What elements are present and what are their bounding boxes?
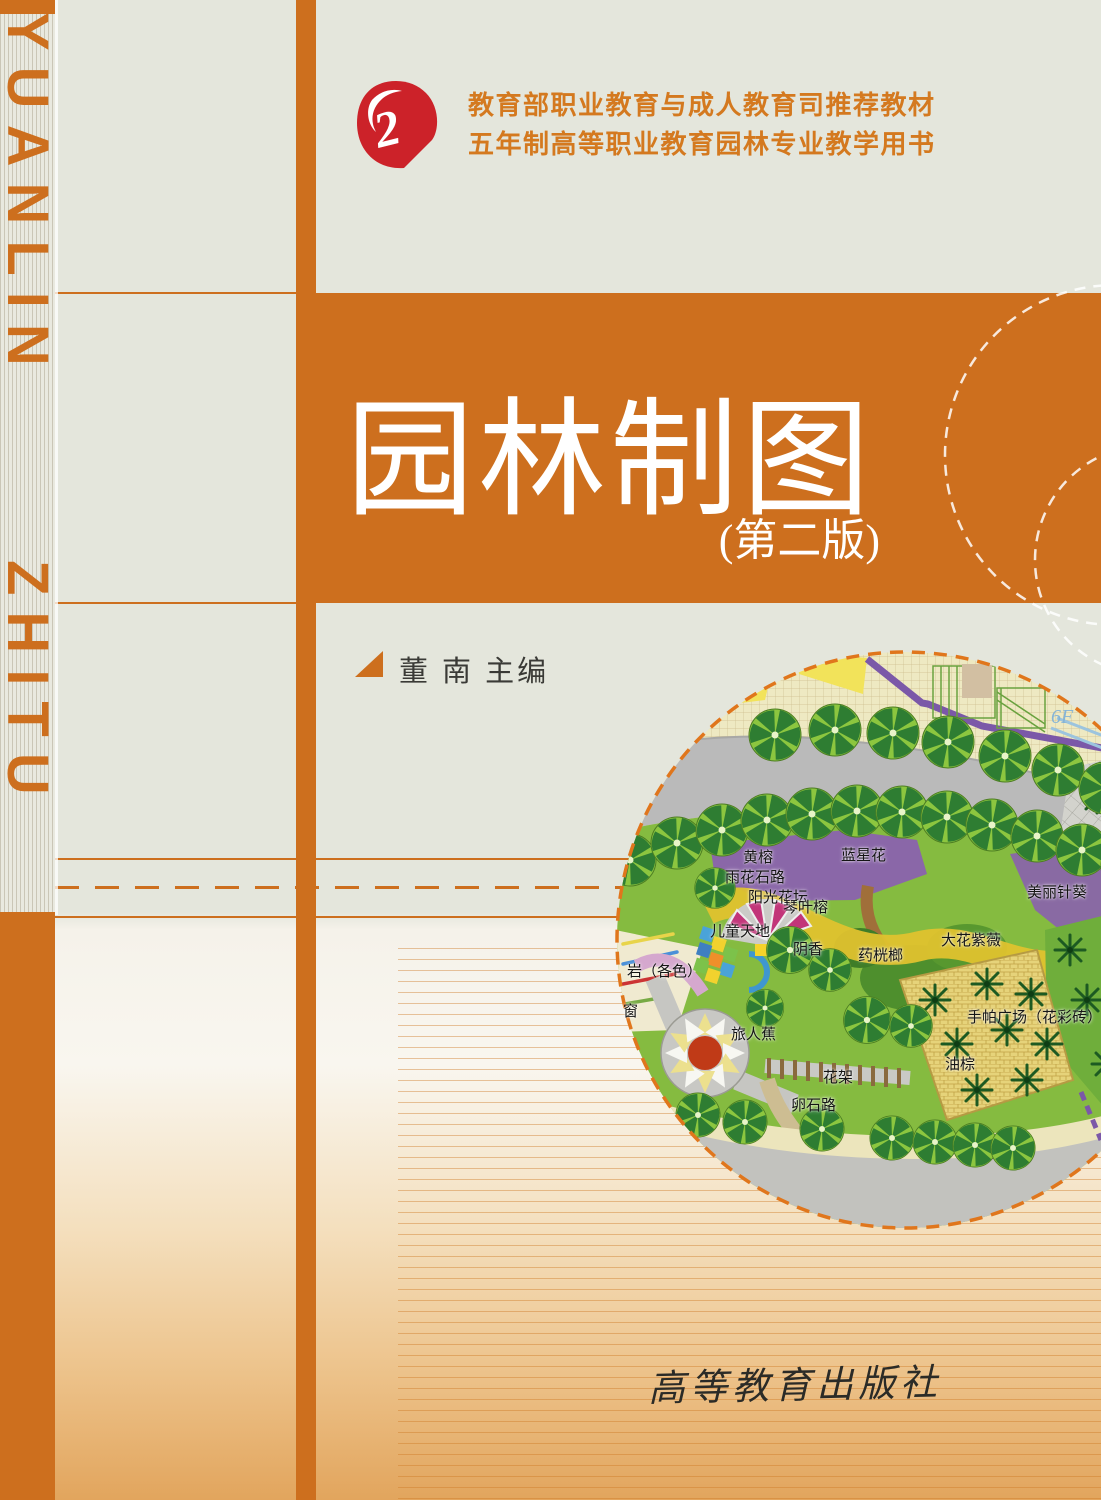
- garden-plan: 6F黄榕雨花石路阳光花坛蓝星花琴叶榕美丽针葵儿童天地阴香药桄榔大花紫薇岩（各色）…: [615, 648, 1101, 1232]
- plan-label: 药桄榔: [858, 944, 903, 965]
- series-line-2: 五年制高等职业教育园林专业教学用书: [468, 125, 936, 164]
- publisher-logo: 2: [352, 78, 440, 172]
- spine-bottom-block: [0, 912, 55, 1500]
- author-line: 董 南 主编: [399, 648, 549, 690]
- vertical-rule: [296, 0, 316, 1500]
- plan-label: 儿童天地: [710, 920, 770, 941]
- book-cover: YUANLIN ZHITU 园林制图 (第二版) 2 教育部职业教育与成人教育司…: [0, 0, 1101, 1500]
- plan-label: 油棕: [945, 1053, 975, 1074]
- plan-label: 蓝星花: [841, 844, 886, 865]
- horizontal-rule-top: [55, 292, 296, 294]
- plan-label: 阴香: [793, 938, 823, 959]
- plan-label: 旅人蕉: [731, 1023, 776, 1044]
- plan-label: 黄榕: [743, 846, 773, 867]
- garden-plan-illustration: [615, 648, 1101, 1232]
- author-triangle-icon: [355, 651, 383, 677]
- spine-strip: YUANLIN ZHITU: [0, 0, 55, 915]
- horizontal-rule-mid: [55, 602, 296, 604]
- plan-label: 琴叶榕: [783, 896, 828, 917]
- edition-label: (第二版): [346, 504, 880, 568]
- spine-text-zhitu: ZHITU: [0, 560, 55, 811]
- plan-label: 窗: [623, 1000, 638, 1021]
- plan-label: 美丽针葵: [1027, 881, 1087, 902]
- publisher-name: 高等教育出版社: [647, 1352, 942, 1412]
- plan-label: 雨花石路: [725, 866, 785, 887]
- plan-content: [615, 648, 1101, 1232]
- plan-label: 6F: [1051, 706, 1073, 729]
- plan-label: 手帕广场（花彩砖）: [967, 1006, 1101, 1027]
- plan-label: 花架: [823, 1066, 853, 1087]
- series-line-1: 教育部职业教育与成人教育司推荐教材: [468, 86, 936, 125]
- series-text: 教育部职业教育与成人教育司推荐教材 五年制高等职业教育园林专业教学用书: [468, 86, 936, 164]
- plan-label: 大花紫薇: [941, 929, 1001, 950]
- plan-label: 岩（各色）: [627, 960, 702, 981]
- spine-text-yuanlin: YUANLIN: [0, 12, 55, 382]
- plan-label: 卵石路: [791, 1094, 836, 1115]
